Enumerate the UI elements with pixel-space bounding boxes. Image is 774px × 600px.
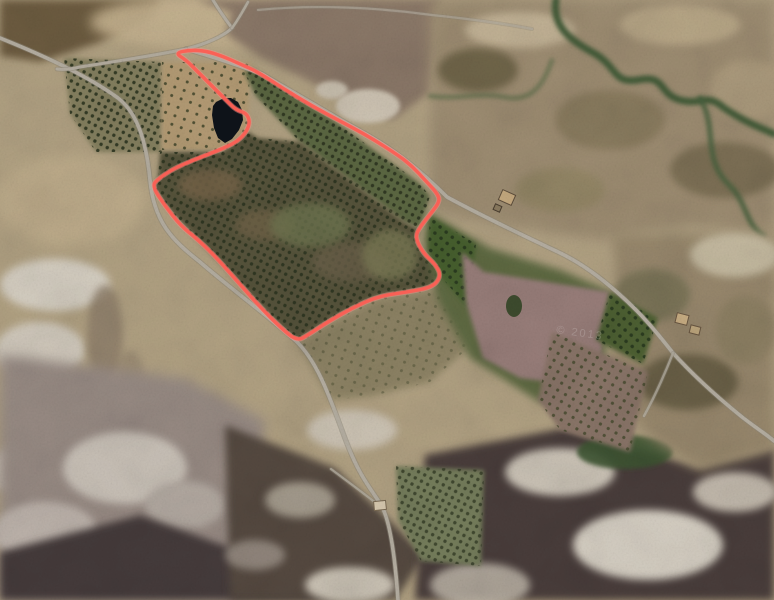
satellite-map-viewport[interactable]: © 2013: [0, 0, 774, 600]
satellite-imagery[interactable]: © 2013: [0, 0, 774, 600]
grain-overlay: [0, 0, 774, 600]
